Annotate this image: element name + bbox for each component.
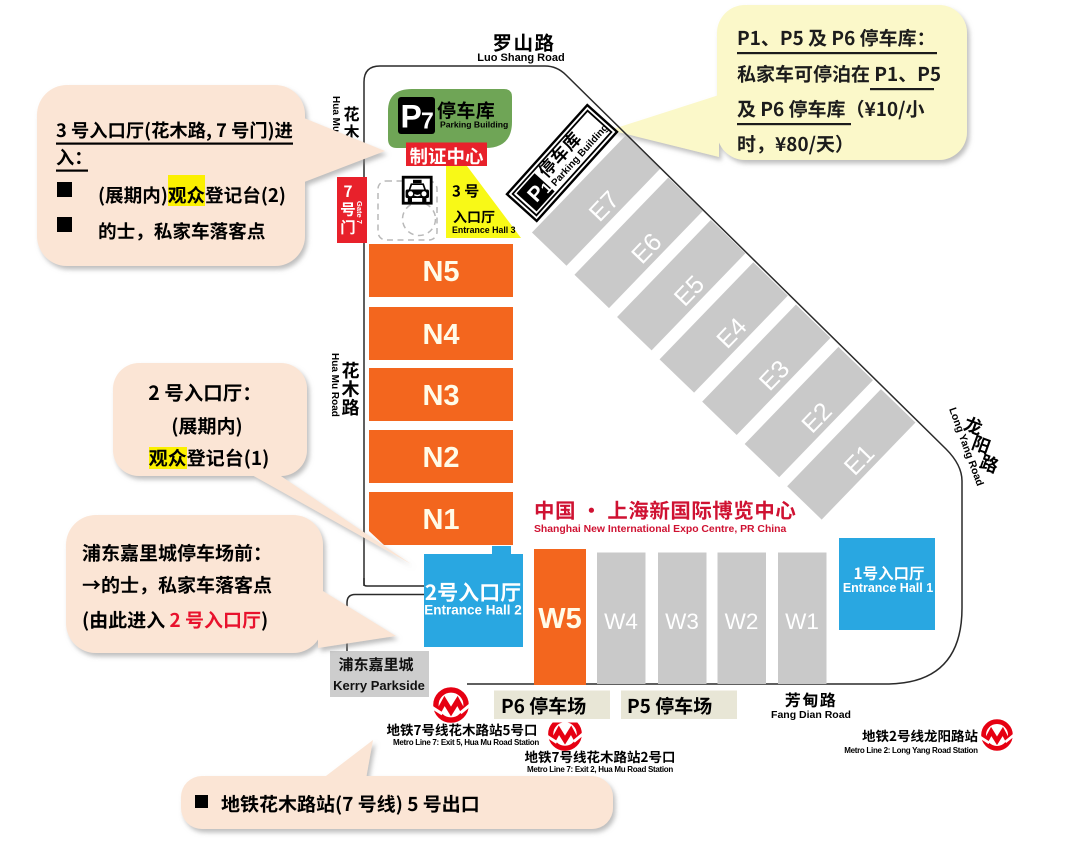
svg-text:W5: W5 [538,603,582,635]
svg-text:Metro Line 2: Long Yang Road S: Metro Line 2: Long Yang Road Station [844,746,978,755]
svg-text:Metro Line 7: Exit 5, Hua Mu R: Metro Line 7: Exit 5, Hua Mu Road Statio… [393,738,539,747]
svg-text:Entrance Hall 1: Entrance Hall 1 [843,581,933,595]
svg-text:W2: W2 [725,609,759,634]
svg-text:Entrance Hall 3: Entrance Hall 3 [452,225,516,235]
svg-text:Luo Shang Road: Luo Shang Road [477,52,564,64]
svg-text:P: P [401,99,422,135]
svg-text:Shanghai New International Exp: Shanghai New International Expo Centre, … [534,524,787,535]
svg-text:Parking Building: Parking Building [440,120,508,130]
svg-text:Hua Mu Road: Hua Mu Road [329,353,340,417]
svg-text:W3: W3 [665,609,699,634]
svg-text:W4: W4 [604,609,638,634]
svg-text:7: 7 [421,108,434,134]
svg-text:N5: N5 [422,256,459,288]
svg-text:Gate 7: Gate 7 [355,201,364,224]
svg-text:W1: W1 [785,609,819,634]
svg-text:Fang Dian Road: Fang Dian Road [771,709,851,721]
svg-text:Kerry Parkside: Kerry Parkside [333,678,425,693]
svg-text:N3: N3 [422,380,459,412]
svg-text:N1: N1 [422,504,459,536]
svg-text:N2: N2 [422,442,459,474]
svg-text:N4: N4 [422,319,459,351]
svg-text:Entrance Hall 2: Entrance Hall 2 [424,603,522,618]
svg-text:Metro Line 7: Exit 2, Hua Mu R: Metro Line 7: Exit 2, Hua Mu Road Statio… [527,765,673,774]
